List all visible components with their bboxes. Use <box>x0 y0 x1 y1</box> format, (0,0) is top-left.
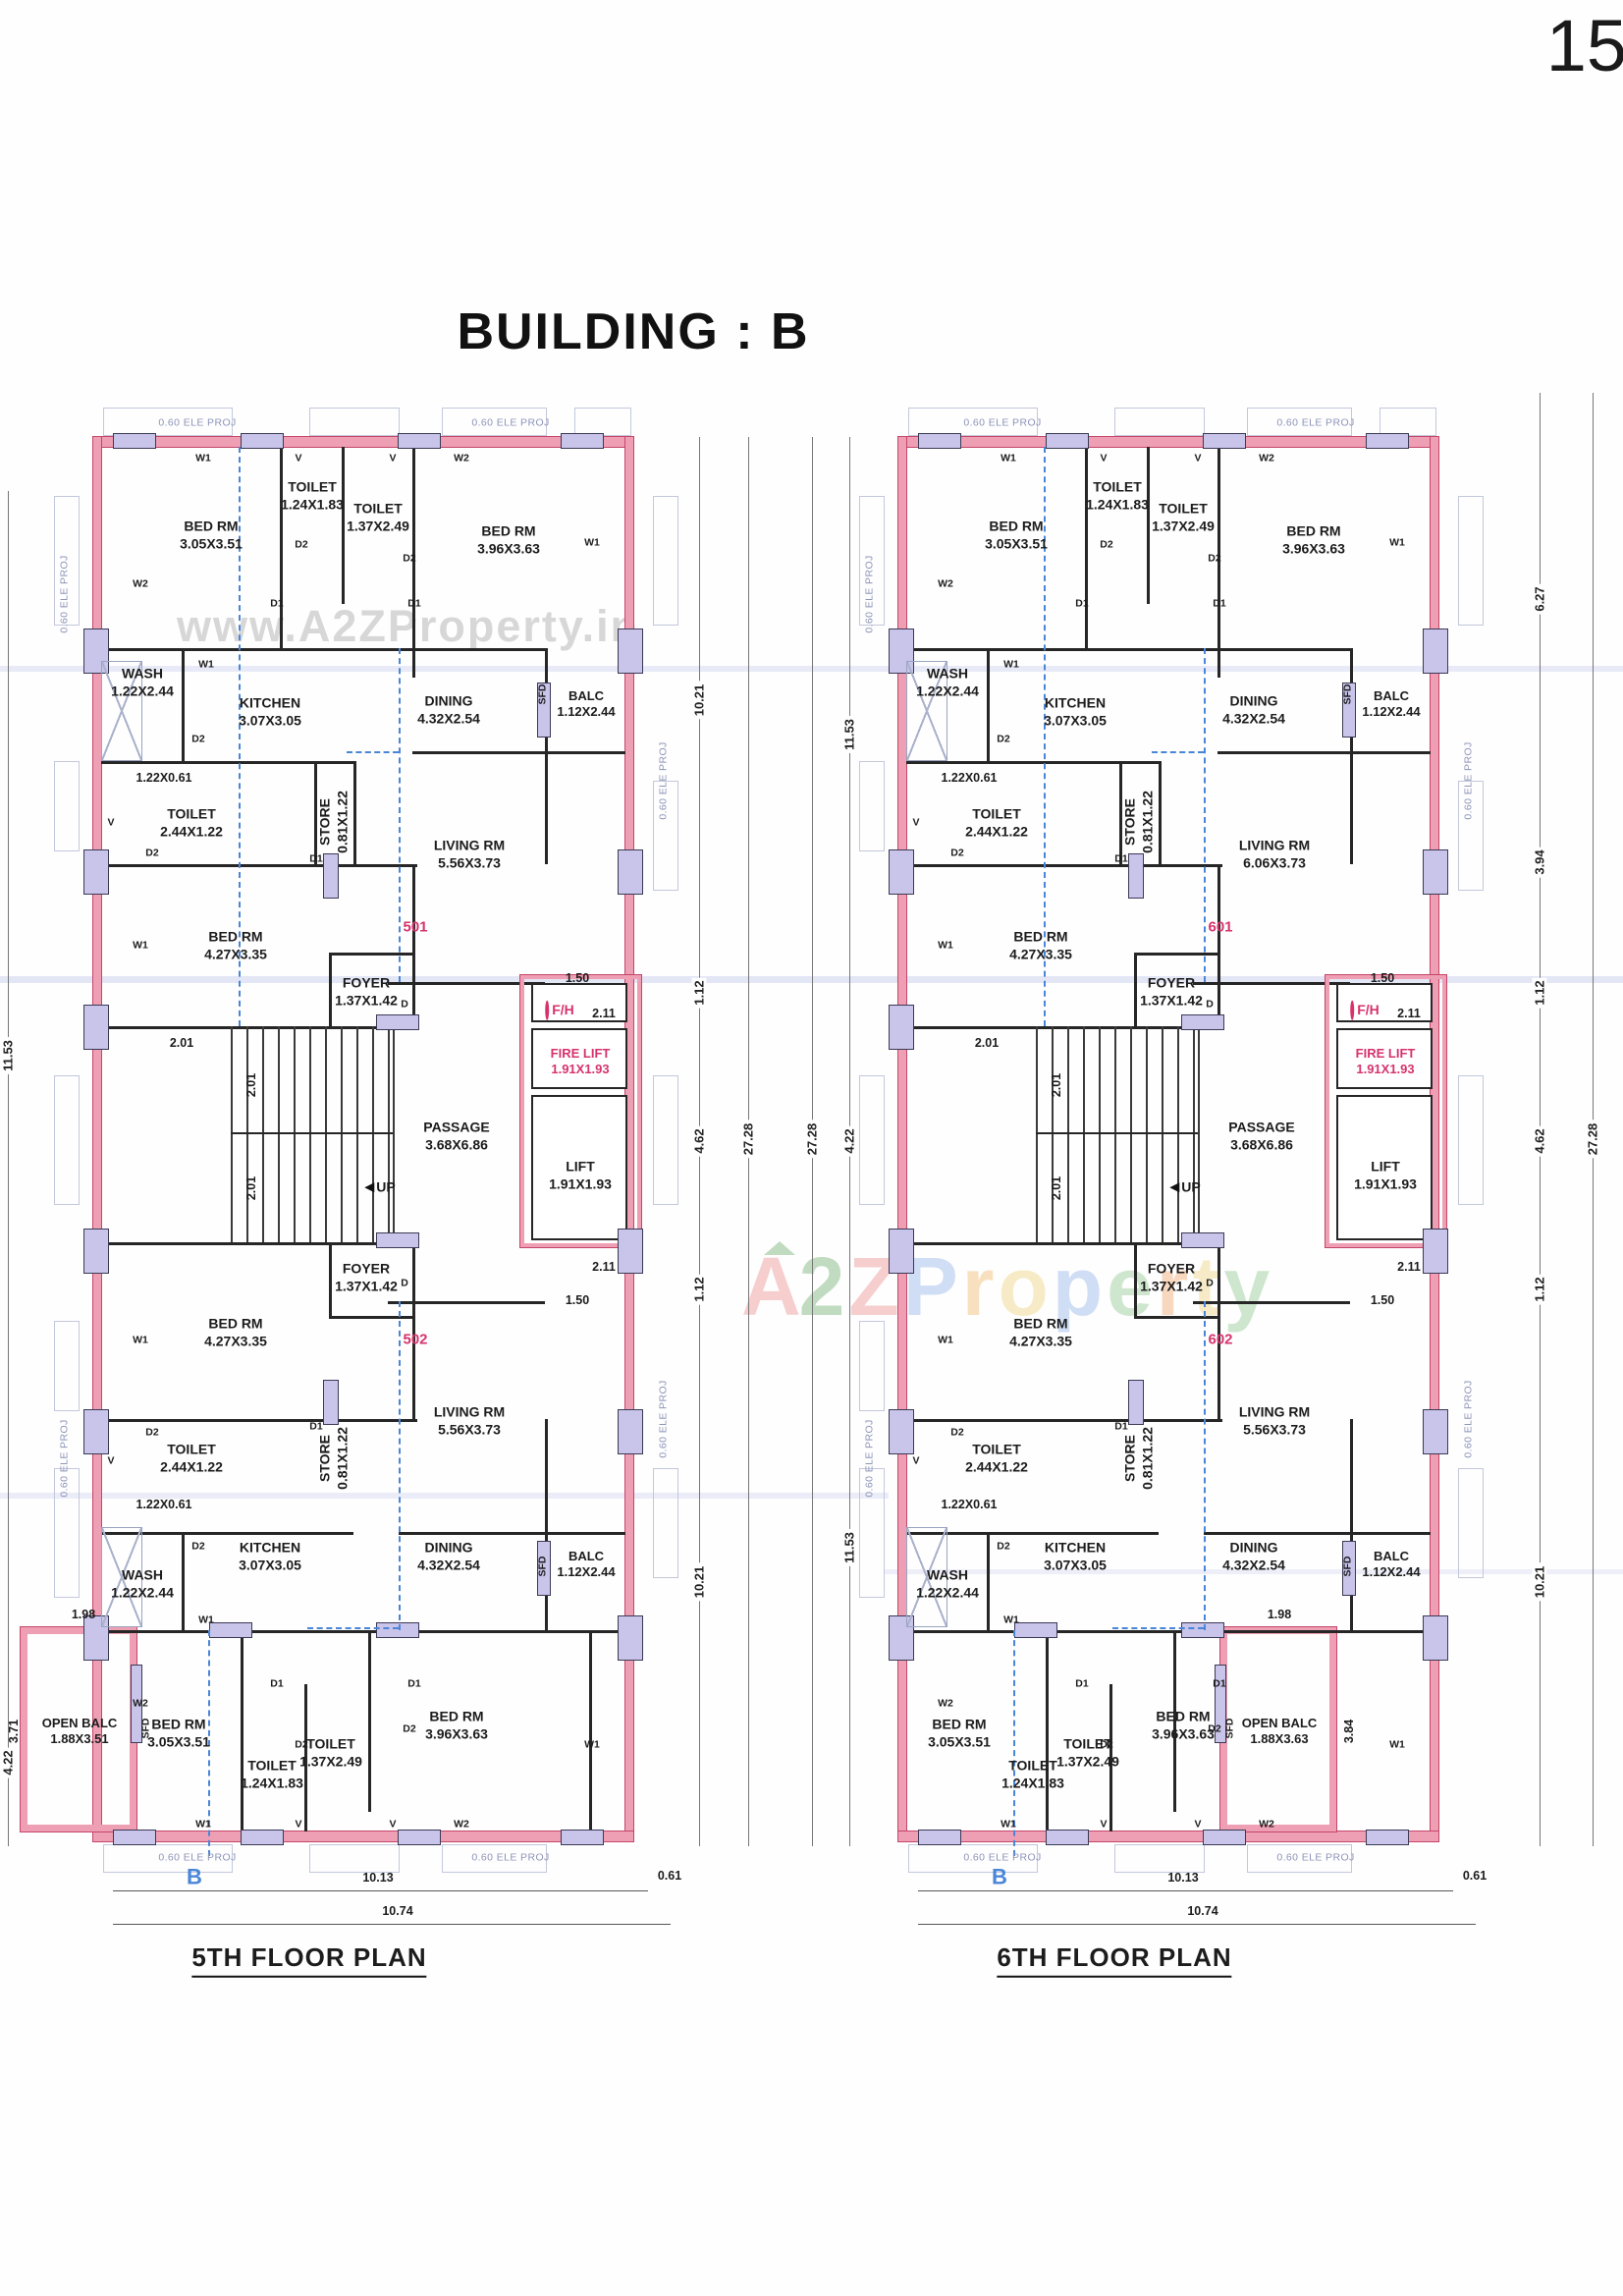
column <box>889 1005 914 1050</box>
dim-label: 10.21 <box>1533 1563 1547 1602</box>
room-name: LIFT <box>549 1159 612 1176</box>
door-tag: D <box>1206 998 1214 1011</box>
column <box>1423 1615 1448 1661</box>
room-label-bedroom: BED RM3.96X3.63 <box>425 1709 488 1743</box>
unit-boundary-dashed <box>1204 648 1206 982</box>
fh-text: F/H <box>1357 1002 1380 1017</box>
door-tag: D2 <box>145 1426 158 1439</box>
balc-width-dim: 1.98 <box>1268 1608 1291 1623</box>
room-label-toilet: TOILET1.24X1.83 <box>1086 479 1149 514</box>
room-dim: 1.24X1.83 <box>241 1775 303 1792</box>
column <box>241 1830 284 1845</box>
room-name: TOILET <box>281 479 344 497</box>
room-dim: 1.91X1.93 <box>551 1062 611 1077</box>
fh-circle-icon <box>1350 1001 1354 1020</box>
room-dim: 3.05X3.51 <box>985 535 1048 553</box>
room-label-store: STORE0.81X1.22 <box>317 1427 352 1490</box>
column <box>241 433 284 449</box>
window-tag: W1 <box>1003 658 1019 671</box>
room-name: TOILET <box>965 1442 1028 1459</box>
balc-width-dim: 1.98 <box>72 1608 95 1623</box>
sfd-tag: SFD <box>536 684 549 705</box>
room-label-open-balcony: OPEN BALC1.88X3.63 <box>1242 1716 1318 1748</box>
room-label-bedroom: BED RM4.27X3.35 <box>204 929 267 963</box>
up-arrow-icon <box>1169 1182 1179 1192</box>
room-dim: 5.56X3.73 <box>434 854 505 872</box>
room-name: LIFT <box>1354 1159 1417 1176</box>
room-label-lift: LIFT1.91X1.93 <box>1354 1159 1417 1193</box>
vent-tag: V <box>1100 452 1107 465</box>
ele-proj-outline <box>653 1468 678 1578</box>
door-tag: D2 <box>191 1540 204 1553</box>
room-label-living: LIVING RM5.56X3.73 <box>434 1404 505 1439</box>
room-name: STORE <box>1122 791 1140 853</box>
ele-proj-outline <box>1458 496 1484 626</box>
ele-proj-outline <box>309 408 400 436</box>
door-tag: D2 <box>191 733 204 745</box>
room-label-kitchen: KITCHEN3.07X3.05 <box>1044 695 1107 730</box>
niche-dim: 1.22X0.61 <box>136 771 192 787</box>
door-tag: D2 <box>997 1540 1009 1553</box>
room-name: DINING <box>417 693 480 711</box>
wall <box>388 1301 545 1304</box>
wall <box>1217 864 1220 1026</box>
room-label-kitchen: KITCHEN3.07X3.05 <box>1044 1540 1107 1574</box>
window-tag: W1 <box>1001 1818 1016 1831</box>
ele-proj-outline <box>859 1321 885 1411</box>
ele-proj-outline <box>859 1075 885 1205</box>
room-dim: 3.05X3.51 <box>928 1733 991 1751</box>
room-name: BED RM <box>1009 1316 1072 1334</box>
wall <box>101 1630 625 1633</box>
dim-label: 1.12 <box>1533 977 1547 1008</box>
up-label: UP <box>1169 1178 1200 1196</box>
door-tag: D <box>401 1277 408 1289</box>
room-name: BED RM <box>1282 523 1345 541</box>
unit-boundary-dashed <box>399 648 401 982</box>
room-dim: 2.44X1.22 <box>160 1458 223 1476</box>
room-label-passage: PASSAGE3.68X6.86 <box>1228 1120 1294 1154</box>
room-label-bedroom: BED RM4.27X3.35 <box>204 1316 267 1350</box>
wall <box>1217 751 1431 754</box>
room-label-wash: WASH1.22X2.44 <box>916 666 979 700</box>
room-label-wash: WASH1.22X2.44 <box>111 666 174 700</box>
column <box>83 1409 109 1454</box>
sfd-tag: SFD <box>1223 1719 1236 1739</box>
room-label-dining: DINING4.32X2.54 <box>1222 1540 1285 1574</box>
door-tag: D2 <box>295 1738 307 1751</box>
room-name: DINING <box>417 1540 480 1558</box>
ele-proj-note: 0.60 ELE PROJ <box>657 1380 670 1457</box>
window-tag: W2 <box>133 1697 148 1710</box>
overall-dim: 10.13 <box>362 1871 393 1886</box>
window-tag: W1 <box>133 939 148 952</box>
dim-label: 11.53 <box>1 1037 16 1074</box>
ele-proj-outline <box>1458 1075 1484 1205</box>
room-dim: 2.44X1.22 <box>965 823 1028 841</box>
room-dim: 1.12X2.44 <box>1362 704 1420 720</box>
room-dim: 2.44X1.22 <box>965 1458 1028 1476</box>
room-dim: 1.91X1.93 <box>1354 1175 1417 1193</box>
dim-150: 1.50 <box>1371 971 1394 987</box>
room-name: BED RM <box>204 1316 267 1334</box>
wall <box>368 1630 371 1812</box>
column <box>83 849 109 895</box>
room-name: BALC <box>1362 1549 1420 1564</box>
balc-height-dim: 3.84 <box>1342 1720 1358 1743</box>
room-label-toilet: TOILET2.44X1.22 <box>965 806 1028 841</box>
window-tag: W1 <box>584 536 600 549</box>
room-label-fire-lift: FIRE LIFT1.91X1.93 <box>551 1046 611 1078</box>
overall-dim: 10.13 <box>1167 1871 1198 1886</box>
column <box>1423 1409 1448 1454</box>
door-tag: D2 <box>1208 1722 1220 1735</box>
door-tag: D2 <box>1100 1738 1112 1751</box>
vent-tag: V <box>912 816 919 829</box>
vent-tag: V <box>912 1454 919 1467</box>
door-tag: D1 <box>270 1677 283 1690</box>
dim-label: 27.28 <box>805 1121 820 1159</box>
door-tag: D2 <box>950 1426 963 1439</box>
column <box>1181 1622 1224 1638</box>
wall <box>589 1630 592 1831</box>
wall <box>906 1242 1198 1245</box>
column <box>323 853 339 899</box>
wall <box>1350 648 1353 864</box>
room-dim: 1.37X2.49 <box>1056 1753 1119 1771</box>
wall <box>1204 1532 1431 1535</box>
ele-proj-outline <box>574 408 631 436</box>
ele-proj-outline <box>1114 408 1205 436</box>
niche-dim: 1.22X0.61 <box>136 1498 192 1513</box>
door-tag: D1 <box>309 852 322 865</box>
room-name: TOILET <box>241 1758 303 1776</box>
wall <box>101 1242 393 1245</box>
sfd-tag: SFD <box>1341 1557 1354 1577</box>
column <box>83 1229 109 1274</box>
room-label-bedroom: BED RM3.05X3.51 <box>180 519 243 553</box>
window-tag: W1 <box>1389 536 1405 549</box>
room-name: TOILET <box>347 501 409 519</box>
room-label-bedroom: BED RM4.27X3.35 <box>1009 1316 1072 1350</box>
room-dim: 1.24X1.83 <box>1001 1775 1064 1792</box>
floor-plan-6th: BED RM3.05X3.51 TOILET1.24X1.83 TOILET1.… <box>889 437 1453 1846</box>
ele-proj-note: 0.60 ELE PROJ <box>863 555 876 632</box>
column <box>1128 1380 1144 1425</box>
room-label-living: LIVING RM5.56X3.73 <box>434 838 505 872</box>
wall <box>101 864 417 867</box>
column <box>1181 1014 1224 1030</box>
dim-label: 6.27 <box>1533 583 1547 614</box>
door-tag: D1 <box>407 1677 420 1690</box>
dim-label: 11.53 <box>842 1529 857 1566</box>
column <box>561 1830 604 1845</box>
dim-211: 2.11 <box>1397 1260 1421 1276</box>
column <box>113 1830 156 1845</box>
room-name: WASH <box>111 666 174 683</box>
ele-proj-outline <box>653 1075 678 1205</box>
window-tag: W1 <box>1003 1613 1019 1626</box>
dimension-line <box>918 1890 1453 1891</box>
dim-label: 4.22 <box>1 1747 16 1777</box>
stair-dim: 2.01 <box>1050 1176 1065 1200</box>
ele-proj-note: 0.60 ELE PROJ <box>471 1851 549 1864</box>
wall <box>1134 1242 1137 1316</box>
room-dim: 1.24X1.83 <box>281 496 344 514</box>
room-name: WASH <box>111 1567 174 1585</box>
room-dim: 0.81X1.22 <box>334 1427 352 1490</box>
window-tag: W1 <box>938 939 953 952</box>
room-dim: 1.91X1.93 <box>1356 1062 1416 1077</box>
window-tag: W1 <box>198 658 214 671</box>
column <box>918 1830 961 1845</box>
staircase <box>1036 1026 1200 1242</box>
column <box>113 433 156 449</box>
room-name: DINING <box>1222 1540 1285 1558</box>
column <box>376 1622 419 1638</box>
room-dim: 0.81X1.22 <box>1139 1427 1157 1490</box>
dim-label: 27.28 <box>741 1121 756 1159</box>
room-name: BED RM <box>985 519 1048 536</box>
room-name: BALC <box>557 1549 615 1564</box>
outer-wall-top <box>898 437 1438 447</box>
room-dim: 4.27X3.35 <box>1009 946 1072 963</box>
window-tag: W2 <box>938 1697 953 1710</box>
ele-proj-outline <box>54 1075 80 1205</box>
room-name: WASH <box>916 1567 979 1585</box>
room-dim: 1.37X1.42 <box>335 992 398 1010</box>
column <box>1046 433 1089 449</box>
dim-label: 1.12 <box>692 1274 707 1304</box>
up-label: UP <box>364 1178 395 1196</box>
ele-proj-note: 0.60 ELE PROJ <box>58 1419 71 1497</box>
room-name: FOYER <box>335 975 398 993</box>
door-tag: D2 <box>950 847 963 859</box>
column <box>323 1380 339 1425</box>
room-dim: 1.12X2.44 <box>1362 1564 1420 1580</box>
wall <box>329 953 332 1026</box>
overall-dim: 10.74 <box>1187 1904 1217 1920</box>
room-label-wash: WASH1.22X2.44 <box>916 1567 979 1602</box>
column <box>618 629 643 674</box>
room-label-toilet: TOILET1.24X1.83 <box>1001 1758 1064 1792</box>
window-tag: W1 <box>195 452 211 465</box>
unit-boundary-dashed <box>307 1627 399 1629</box>
window-tag: W2 <box>1259 1818 1274 1831</box>
ele-proj-note: 0.60 ELE PROJ <box>963 416 1041 429</box>
door-tag: D2 <box>1208 552 1220 565</box>
room-label-bedroom: BED RM4.27X3.35 <box>1009 929 1072 963</box>
wall <box>329 1242 332 1316</box>
room-label-balcony: BALC1.12X2.44 <box>1362 1549 1420 1581</box>
column <box>1423 1229 1448 1274</box>
room-label-living: LIVING RM6.06X3.73 <box>1239 838 1310 872</box>
ele-proj-outline <box>1380 408 1436 436</box>
fh-text: F/H <box>552 1002 574 1017</box>
column <box>83 1005 109 1050</box>
wall <box>101 1419 417 1422</box>
window-tag: W1 <box>584 1738 600 1751</box>
room-dim: 3.07X3.05 <box>239 712 301 730</box>
room-name: TOILET <box>1001 1758 1064 1776</box>
overall-dim: 10.74 <box>382 1904 412 1920</box>
room-dim: 6.06X3.73 <box>1239 854 1310 872</box>
room-name: FOYER <box>1140 975 1203 993</box>
column <box>376 1014 419 1030</box>
room-dim: 0.81X1.22 <box>334 791 352 853</box>
outer-wall-top <box>93 437 633 447</box>
stair-dim: 2.01 <box>244 1073 260 1097</box>
room-label-foyer: FOYER1.37X1.42 <box>335 975 398 1010</box>
room-label-foyer: FOYER1.37X1.42 <box>1140 1261 1203 1295</box>
column <box>1014 1622 1057 1638</box>
room-label-dining: DINING4.32X2.54 <box>1222 693 1285 728</box>
room-label-lift: LIFT1.91X1.93 <box>549 1159 612 1193</box>
room-dim: 4.32X2.54 <box>417 710 480 728</box>
dim-label: 27.28 <box>1586 1121 1600 1159</box>
room-dim: 4.32X2.54 <box>417 1557 480 1574</box>
room-label-bedroom: BED RM3.96X3.63 <box>1152 1709 1215 1743</box>
room-name: DINING <box>1222 693 1285 711</box>
room-name: TOILET <box>965 806 1028 824</box>
ele-proj-note: 0.60 ELE PROJ <box>471 416 549 429</box>
room-name: FOYER <box>1140 1261 1203 1279</box>
room-label-fire-lift: FIRE LIFT1.91X1.93 <box>1356 1046 1416 1078</box>
room-dim: 3.05X3.51 <box>147 1733 210 1751</box>
room-label-living: LIVING RM5.56X3.73 <box>1239 1404 1310 1439</box>
dim-label: 1.12 <box>1533 1274 1547 1304</box>
room-dim: 2.44X1.22 <box>160 823 223 841</box>
column <box>1203 433 1246 449</box>
window-tag: W1 <box>198 1613 214 1626</box>
wall <box>906 864 1222 867</box>
room-label-open-balcony: OPEN BALC1.88X3.51 <box>42 1716 118 1748</box>
stair-dim: 2.01 <box>244 1176 260 1200</box>
column <box>618 849 643 895</box>
vent-tag: V <box>389 1818 396 1831</box>
room-dim: 3.96X3.63 <box>425 1725 488 1743</box>
wall <box>987 648 990 761</box>
wall <box>1147 447 1150 604</box>
room-label-kitchen: KITCHEN3.07X3.05 <box>239 1540 301 1574</box>
wall <box>545 1419 548 1630</box>
room-dim: 4.27X3.35 <box>204 1333 267 1350</box>
sfd-tag: SFD <box>139 1719 152 1739</box>
room-name: TOILET <box>160 1442 223 1459</box>
room-name: KITCHEN <box>1044 1540 1107 1558</box>
room-name: BED RM <box>928 1717 991 1734</box>
dimension-line <box>918 1924 1476 1925</box>
room-name: FIRE LIFT <box>1356 1046 1416 1062</box>
door-tag: D1 <box>1114 1420 1127 1433</box>
stair-landing-line <box>231 1132 393 1134</box>
ele-proj-note: 0.60 ELE PROJ <box>158 416 236 429</box>
room-name: BED RM <box>180 519 243 536</box>
wall <box>353 761 356 864</box>
room-dim: 1.37X1.42 <box>335 1278 398 1295</box>
outer-wall-bottom <box>93 1831 633 1841</box>
door-tag: D1 <box>1213 1677 1225 1690</box>
room-name: LIVING RM <box>1239 838 1310 855</box>
ele-proj-outline <box>653 496 678 626</box>
door-tag: D2 <box>145 847 158 859</box>
room-dim: 1.22X2.44 <box>111 1584 174 1602</box>
room-name: STORE <box>317 1427 335 1490</box>
door-tag: D2 <box>403 552 415 565</box>
room-label-bedroom: BED RM3.05X3.51 <box>147 1717 210 1751</box>
room-label-bedroom: BED RM3.96X3.63 <box>1282 523 1345 558</box>
stair-landing-line <box>1036 1132 1198 1134</box>
room-name: LIVING RM <box>1239 1404 1310 1422</box>
niche-dim: 1.22X0.61 <box>942 1498 998 1513</box>
dim-150: 1.50 <box>1371 1293 1394 1309</box>
column <box>889 1229 914 1274</box>
room-name: LIVING RM <box>434 1404 505 1422</box>
staircase <box>231 1026 395 1242</box>
door-tag: D1 <box>1114 852 1127 865</box>
dim-211: 2.11 <box>592 1007 616 1022</box>
room-dim: 1.37X1.42 <box>1140 992 1203 1010</box>
room-name: FIRE LIFT <box>551 1046 611 1062</box>
room-name: BED RM <box>204 929 267 947</box>
vent-tag: V <box>107 816 114 829</box>
room-name: OPEN BALC <box>42 1716 118 1731</box>
vent-tag: V <box>1194 1818 1201 1831</box>
room-name: BED RM <box>1152 1709 1215 1726</box>
room-name: FOYER <box>335 1261 398 1279</box>
door-tag: D1 <box>1075 1677 1088 1690</box>
room-name: BED RM <box>425 1709 488 1726</box>
room-label-toilet: TOILET1.24X1.83 <box>281 479 344 514</box>
room-dim: 1.37X2.49 <box>1152 518 1215 535</box>
room-name: BED RM <box>1009 929 1072 947</box>
room-name: LIVING RM <box>434 838 505 855</box>
window-tag: W1 <box>133 1334 148 1346</box>
room-name: TOILET <box>299 1736 362 1754</box>
sfd-tag: SFD <box>1341 684 1354 705</box>
outer-wall-bottom <box>898 1831 1438 1841</box>
room-label-kitchen: KITCHEN3.07X3.05 <box>239 695 301 730</box>
dimension-line <box>113 1890 648 1891</box>
room-label-balcony: BALC1.12X2.44 <box>557 688 615 721</box>
dimension-line <box>8 491 9 1846</box>
vent-tag: V <box>295 1818 301 1831</box>
window-tag: W1 <box>1001 452 1016 465</box>
apartment-number: 601 <box>1208 919 1232 938</box>
dim-label: 11.53 <box>842 716 857 753</box>
column <box>398 433 441 449</box>
window-tag: W2 <box>133 577 148 590</box>
room-dim: 1.12X2.44 <box>557 1564 615 1580</box>
room-dim: 1.22X2.44 <box>111 683 174 700</box>
house-roof-icon <box>764 1241 795 1255</box>
room-dim: 5.56X3.73 <box>434 1421 505 1439</box>
up-arrow-icon <box>364 1182 374 1192</box>
unit-boundary-dashed <box>1152 751 1204 753</box>
overall-dim: 0.61 <box>1463 1869 1487 1885</box>
column <box>1366 433 1409 449</box>
door-tag: D <box>401 998 408 1011</box>
ele-proj-outline <box>54 761 80 851</box>
column <box>618 1409 643 1454</box>
column <box>561 433 604 449</box>
unit-boundary-dashed <box>1204 1301 1206 1630</box>
column <box>618 1229 643 1274</box>
wall <box>1046 1630 1049 1831</box>
ele-proj-outline <box>1458 1468 1484 1578</box>
unit-boundary-dashed <box>1112 1627 1204 1629</box>
window-tag: W2 <box>938 577 953 590</box>
